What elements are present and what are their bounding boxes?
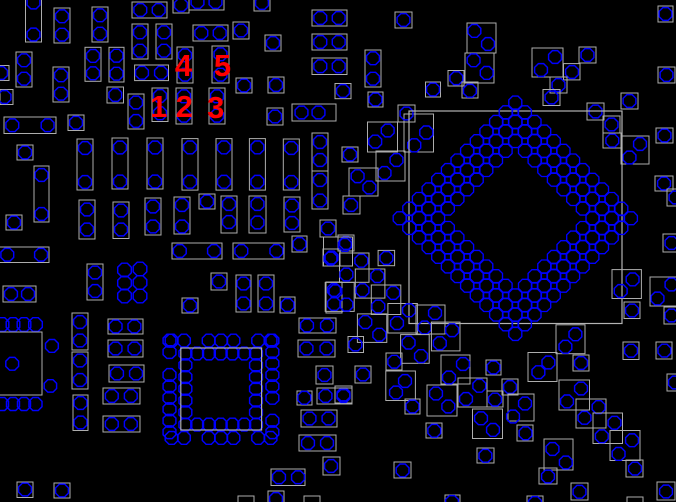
svg-text:5: 5	[214, 48, 231, 83]
svg-text:1: 1	[150, 89, 167, 124]
svg-text:3: 3	[207, 90, 224, 125]
svg-text:4: 4	[175, 48, 193, 83]
svg-text:2: 2	[176, 89, 193, 124]
